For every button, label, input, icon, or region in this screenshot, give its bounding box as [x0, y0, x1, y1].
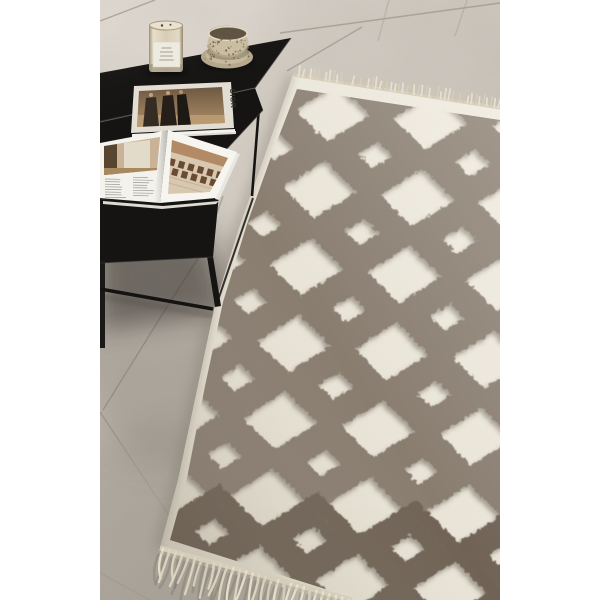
candle-label [153, 42, 180, 67]
matte-right [500, 0, 600, 600]
matte-left [0, 0, 100, 600]
product-photo: DIOR [0, 0, 600, 600]
table-leg-left [100, 260, 105, 348]
candle [146, 21, 186, 77]
closed-magazine: DIOR [131, 82, 236, 139]
magazine-masthead: DIOR [228, 89, 236, 109]
